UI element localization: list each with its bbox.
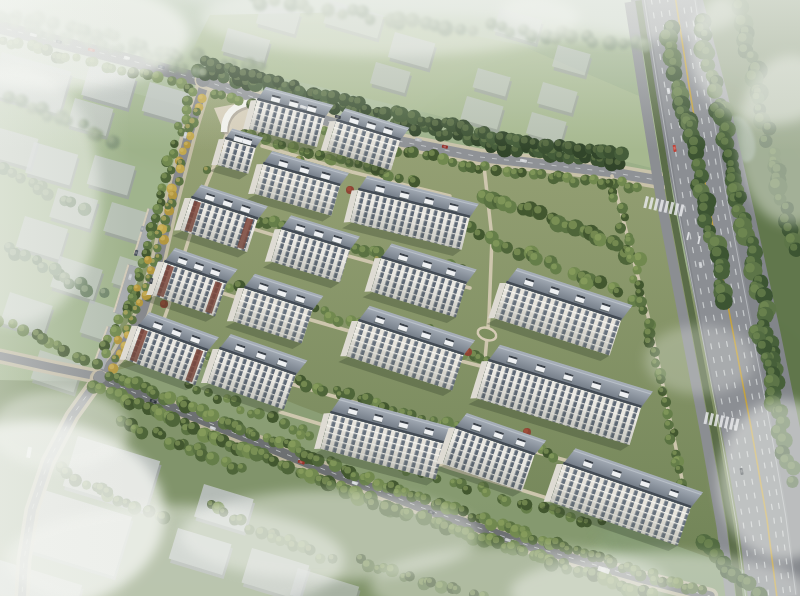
fog-patch (645, 325, 755, 395)
aerial-rendering: Aerial rendering of a residential comple… (0, 0, 800, 596)
render-canvas (0, 0, 800, 596)
